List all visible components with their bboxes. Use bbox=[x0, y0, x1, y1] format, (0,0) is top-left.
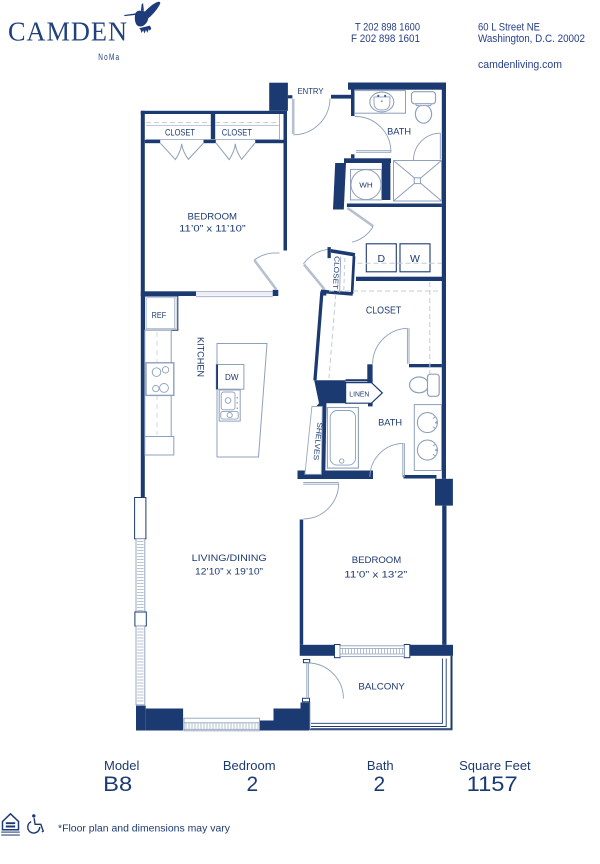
svg-text:Square Feet: Square Feet bbox=[459, 758, 531, 773]
svg-text:NoMa: NoMa bbox=[98, 52, 120, 63]
svg-text:2: 2 bbox=[374, 773, 386, 796]
svg-text:Model: Model bbox=[104, 758, 140, 773]
svg-text:Bedroom: Bedroom bbox=[223, 758, 276, 773]
svg-text:60 L Street NE: 60 L Street NE bbox=[478, 22, 540, 34]
svg-text:LIVING/DINING: LIVING/DINING bbox=[192, 553, 267, 563]
svg-text:CLOSET: CLOSET bbox=[222, 127, 252, 137]
svg-text:CLOSET: CLOSET bbox=[331, 256, 342, 290]
svg-text:1157: 1157 bbox=[467, 773, 518, 796]
svg-text:REF: REF bbox=[152, 310, 167, 320]
svg-text:LINEN: LINEN bbox=[349, 390, 369, 399]
svg-text:DW: DW bbox=[225, 373, 239, 382]
svg-text:BEDROOM: BEDROOM bbox=[188, 212, 238, 222]
svg-text:B8: B8 bbox=[103, 773, 132, 796]
svg-text:F 202 898 1601: F 202 898 1601 bbox=[351, 33, 420, 45]
svg-text:T 202 898 1600: T 202 898 1600 bbox=[355, 22, 420, 34]
svg-text:2: 2 bbox=[246, 773, 258, 796]
svg-text:camdenliving.com: camdenliving.com bbox=[478, 59, 562, 71]
svg-text:Washington, D.C. 20002: Washington, D.C. 20002 bbox=[478, 33, 585, 45]
svg-text:12’10” x 19’10”: 12’10” x 19’10” bbox=[195, 566, 263, 576]
svg-text:BALCONY: BALCONY bbox=[358, 682, 405, 692]
svg-text:BEDROOM: BEDROOM bbox=[352, 555, 402, 565]
svg-text:*Floor plan and dimensions may: *Floor plan and dimensions may vary bbox=[58, 824, 230, 835]
svg-text:WH: WH bbox=[359, 181, 373, 190]
svg-text:KITCHEN: KITCHEN bbox=[196, 337, 206, 377]
svg-text:11’0” x 11’10”: 11’0” x 11’10” bbox=[179, 224, 246, 234]
svg-text:BATH: BATH bbox=[378, 418, 402, 428]
svg-text:CLOSET: CLOSET bbox=[366, 306, 402, 317]
svg-text:CLOSET: CLOSET bbox=[165, 127, 195, 137]
svg-text:ENTRY: ENTRY bbox=[298, 87, 325, 96]
svg-text:BATH: BATH bbox=[387, 126, 411, 136]
svg-text:CAMDEN: CAMDEN bbox=[8, 17, 128, 47]
svg-text:11’0” x 13’2”: 11’0” x 13’2” bbox=[344, 569, 407, 579]
svg-text:Bath: Bath bbox=[367, 758, 394, 773]
